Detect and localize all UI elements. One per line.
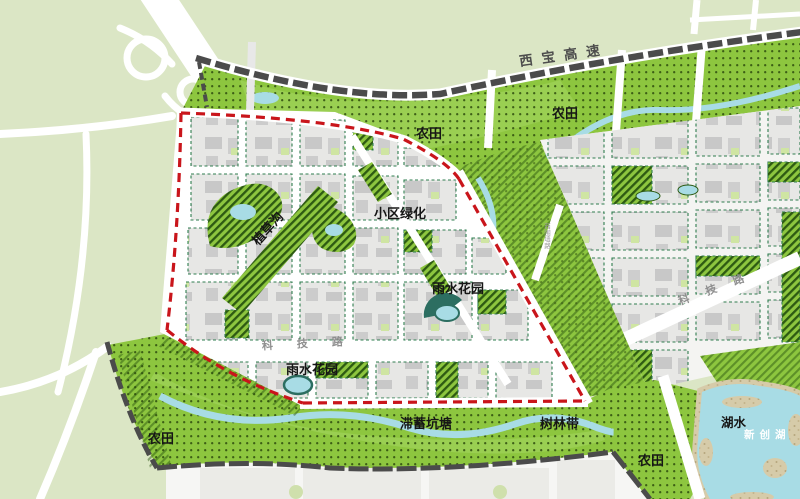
detention-pond-label: 滞蓄坑塘 [400,416,452,431]
rain-garden-lower-label: 雨水花园 [286,362,338,377]
planning-map: 西宝高速 农田 农田 农田 农田 小区绿化 植草沟 雨水花园 雨水花园 科技路 … [0,0,800,499]
lake-water-label: 湖水 [721,415,747,430]
lake-name-label: 新创湖 [744,428,791,441]
farmland-label-bottom-left: 农田 [147,431,174,446]
residential-greening-label: 小区绿化 [374,206,426,221]
rain-garden-upper-label: 雨水花园 [432,281,484,296]
map-canvas: 西宝高速 农田 农田 农田 农田 小区绿化 植草沟 雨水花园 雨水花园 科技路 … [0,0,800,499]
farmland-label-top-center: 农田 [415,126,442,141]
tree-belt-label: 树林带 [540,416,579,431]
farmland-label-top-right: 农田 [551,106,578,121]
farmland-label-bottom-right: 农田 [637,453,664,468]
rain-garden-lower-feature [284,376,312,394]
